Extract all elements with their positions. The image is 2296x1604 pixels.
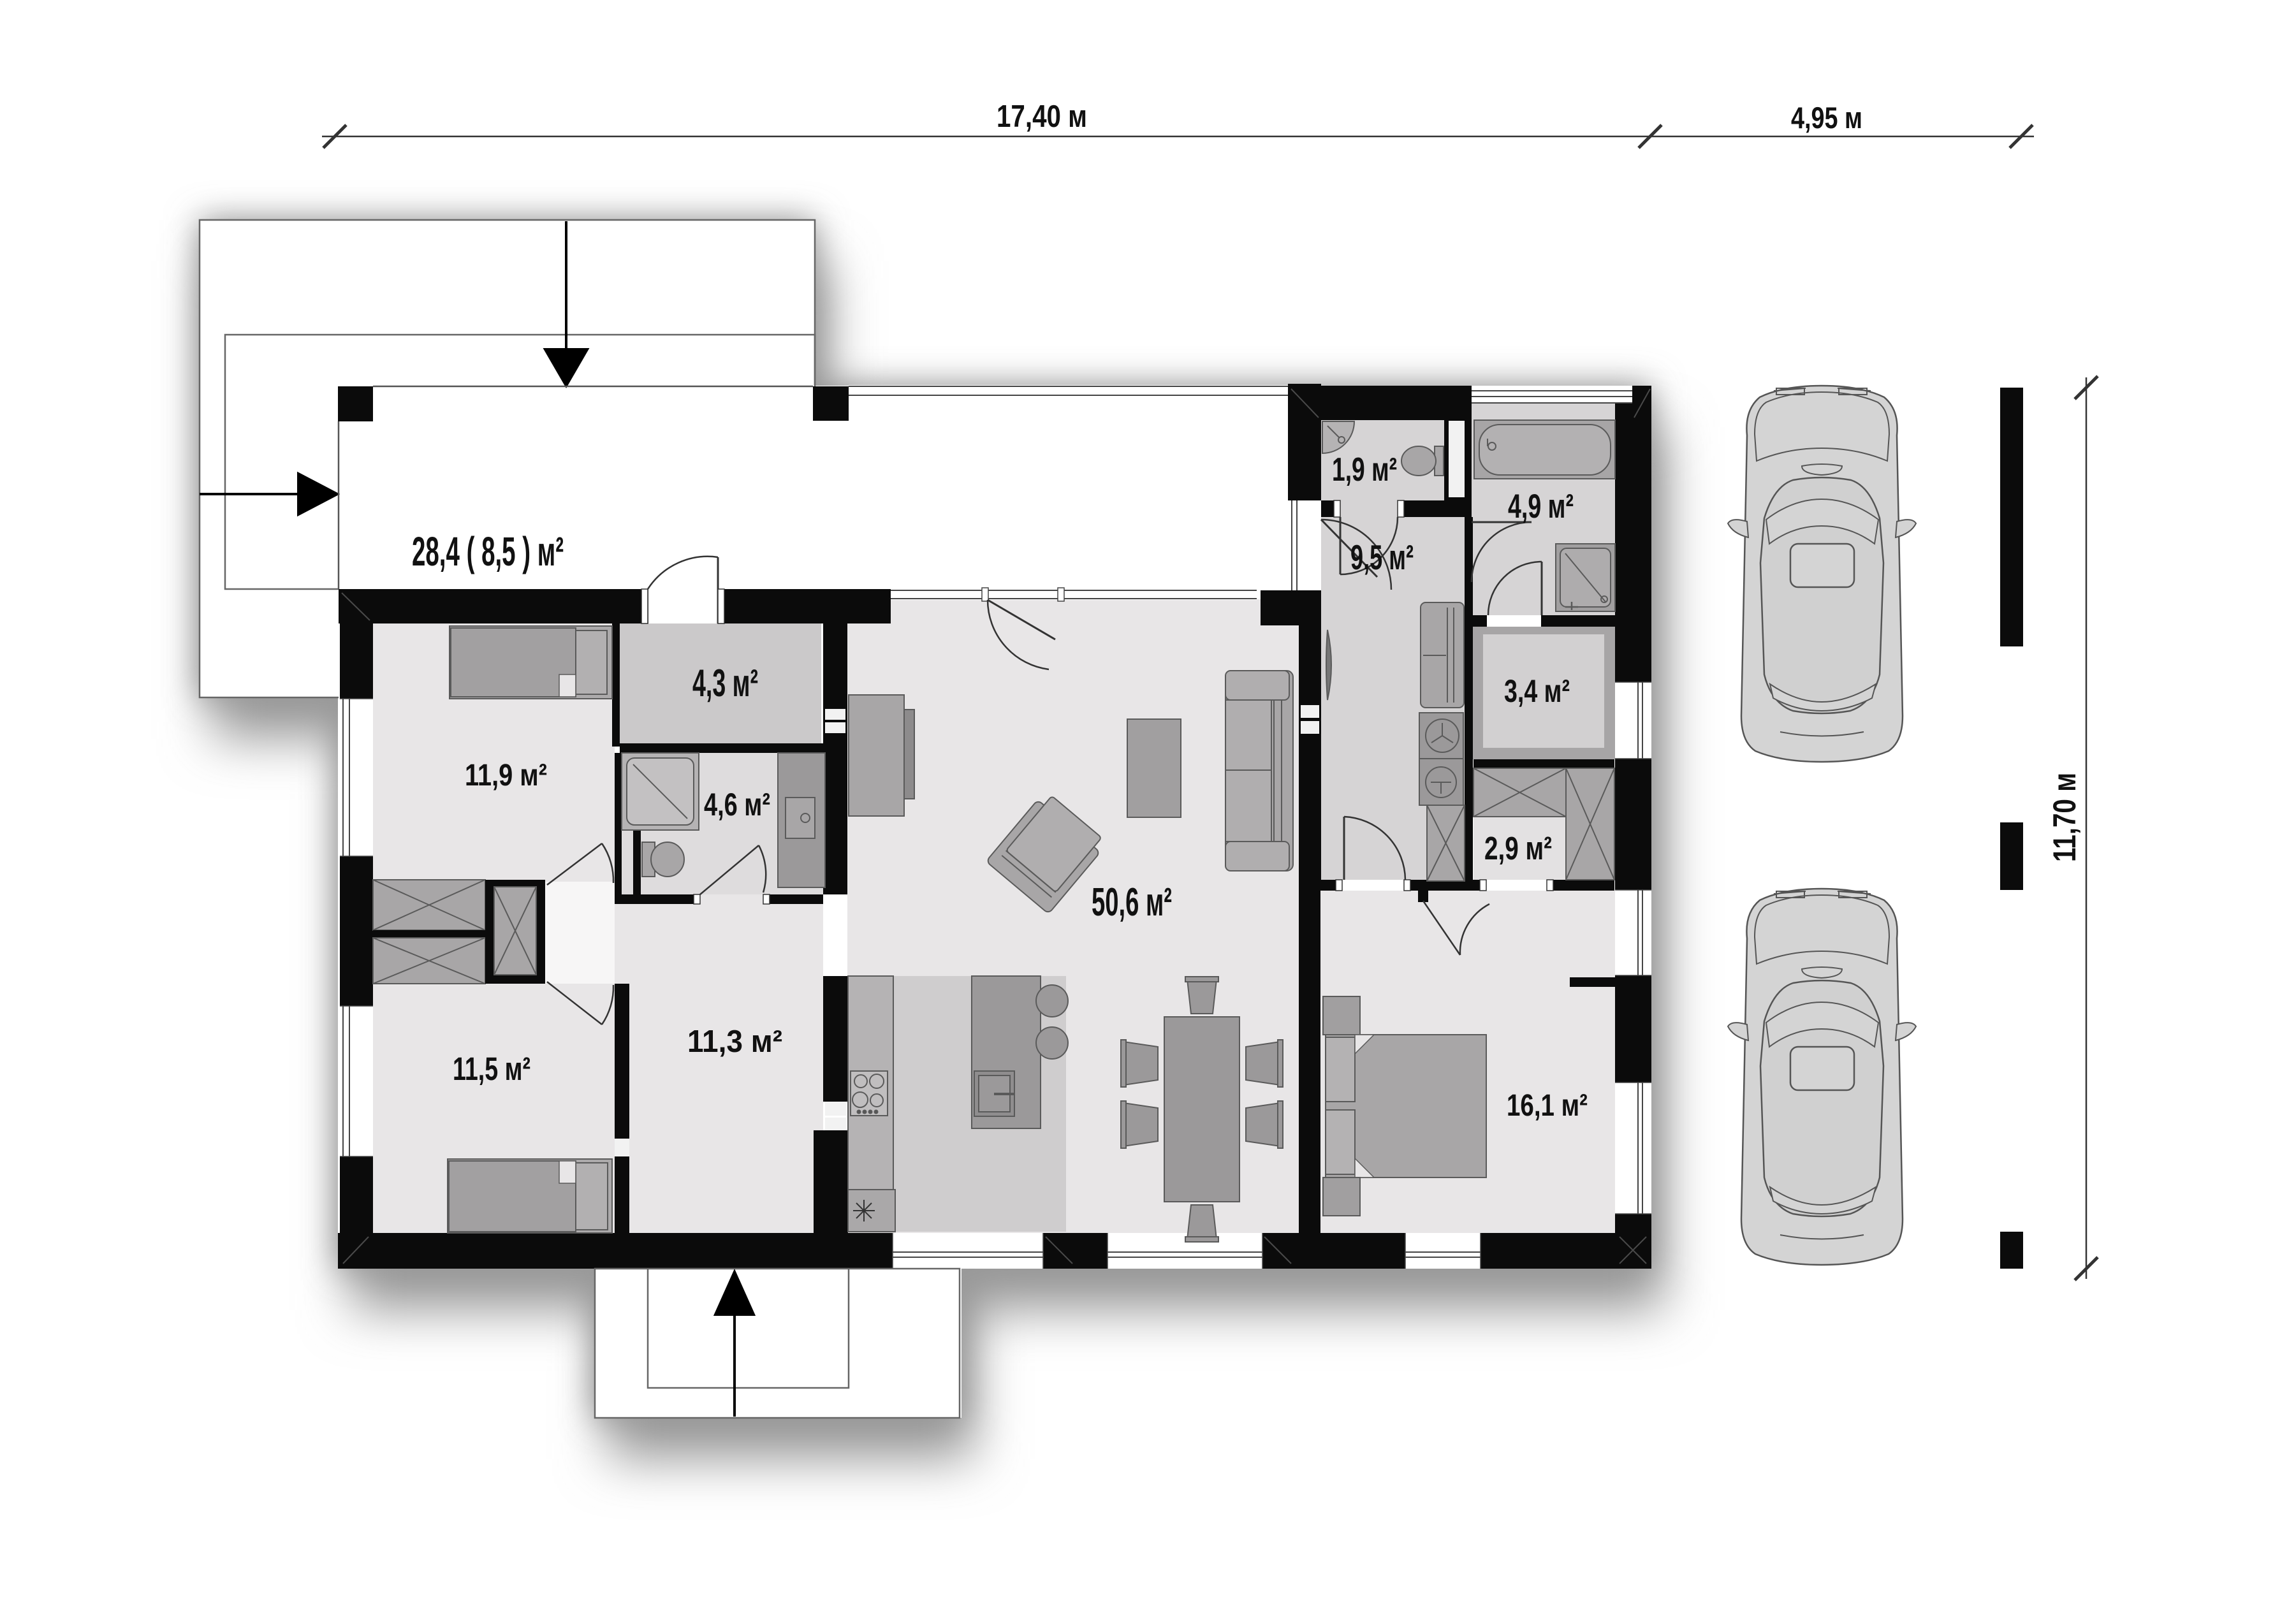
svg-text:4,6 м²: 4,6 м² [704,787,770,822]
svg-text:3,4 м²: 3,4 м² [1504,673,1570,709]
svg-text:2,9 м²: 2,9 м² [1484,830,1552,866]
svg-text:4,95 м: 4,95 м [1791,101,1862,135]
svg-text:9,5 м²: 9,5 м² [1350,537,1414,577]
svg-text:4,9 м²: 4,9 м² [1508,488,1574,525]
svg-text:28,4 ( 8,5 ) м²: 28,4 ( 8,5 ) м² [412,529,564,574]
svg-text:50,6 м²: 50,6 м² [1092,880,1172,924]
svg-text:11,9 м²: 11,9 м² [465,759,547,792]
svg-text:11,5 м²: 11,5 м² [453,1051,530,1087]
svg-text:16,1 м²: 16,1 м² [1507,1089,1588,1123]
svg-text:1,9 м²: 1,9 м² [1332,451,1397,488]
svg-text:4,3 м²: 4,3 м² [692,662,758,704]
svg-text:11,70 м: 11,70 м [2047,773,2082,862]
svg-text:11,3 м²: 11,3 м² [687,1024,782,1059]
svg-text:17,40 м: 17,40 м [997,99,1087,134]
